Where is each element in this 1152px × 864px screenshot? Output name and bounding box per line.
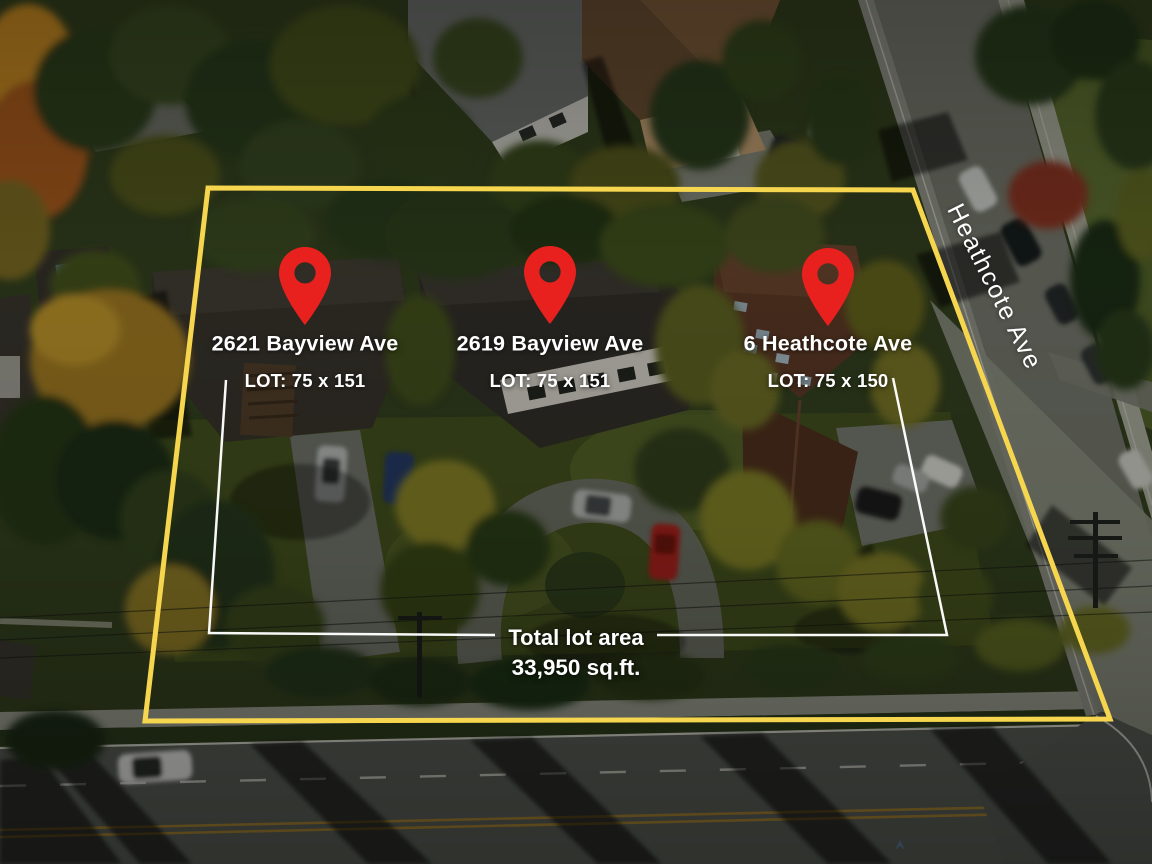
total-lot-area-title: Total lot area (508, 627, 643, 649)
annotation-overlay (0, 0, 1152, 864)
aerial-listing-image: 2621 Bayview Ave LOT: 75 x 151 2619 Bayv… (0, 0, 1152, 864)
map-pin-2621 (279, 247, 331, 325)
property-lot-2619: LOT: 75 x 151 (490, 372, 611, 391)
map-pin-2619 (524, 246, 576, 324)
map-pin-6-heathcote (802, 248, 854, 326)
total-lot-area-value: 33,950 sq.ft. (512, 657, 641, 680)
property-lot-6-heathcote: LOT: 75 x 150 (768, 372, 889, 391)
property-address-6-heathcote: 6 Heathcote Ave (744, 333, 913, 355)
property-address-2619: 2619 Bayview Ave (457, 333, 644, 355)
property-lot-2621: LOT: 75 x 151 (245, 372, 366, 391)
measurement-line-west (209, 380, 495, 635)
measurement-line-east (657, 378, 947, 635)
property-address-2621: 2621 Bayview Ave (212, 333, 399, 355)
